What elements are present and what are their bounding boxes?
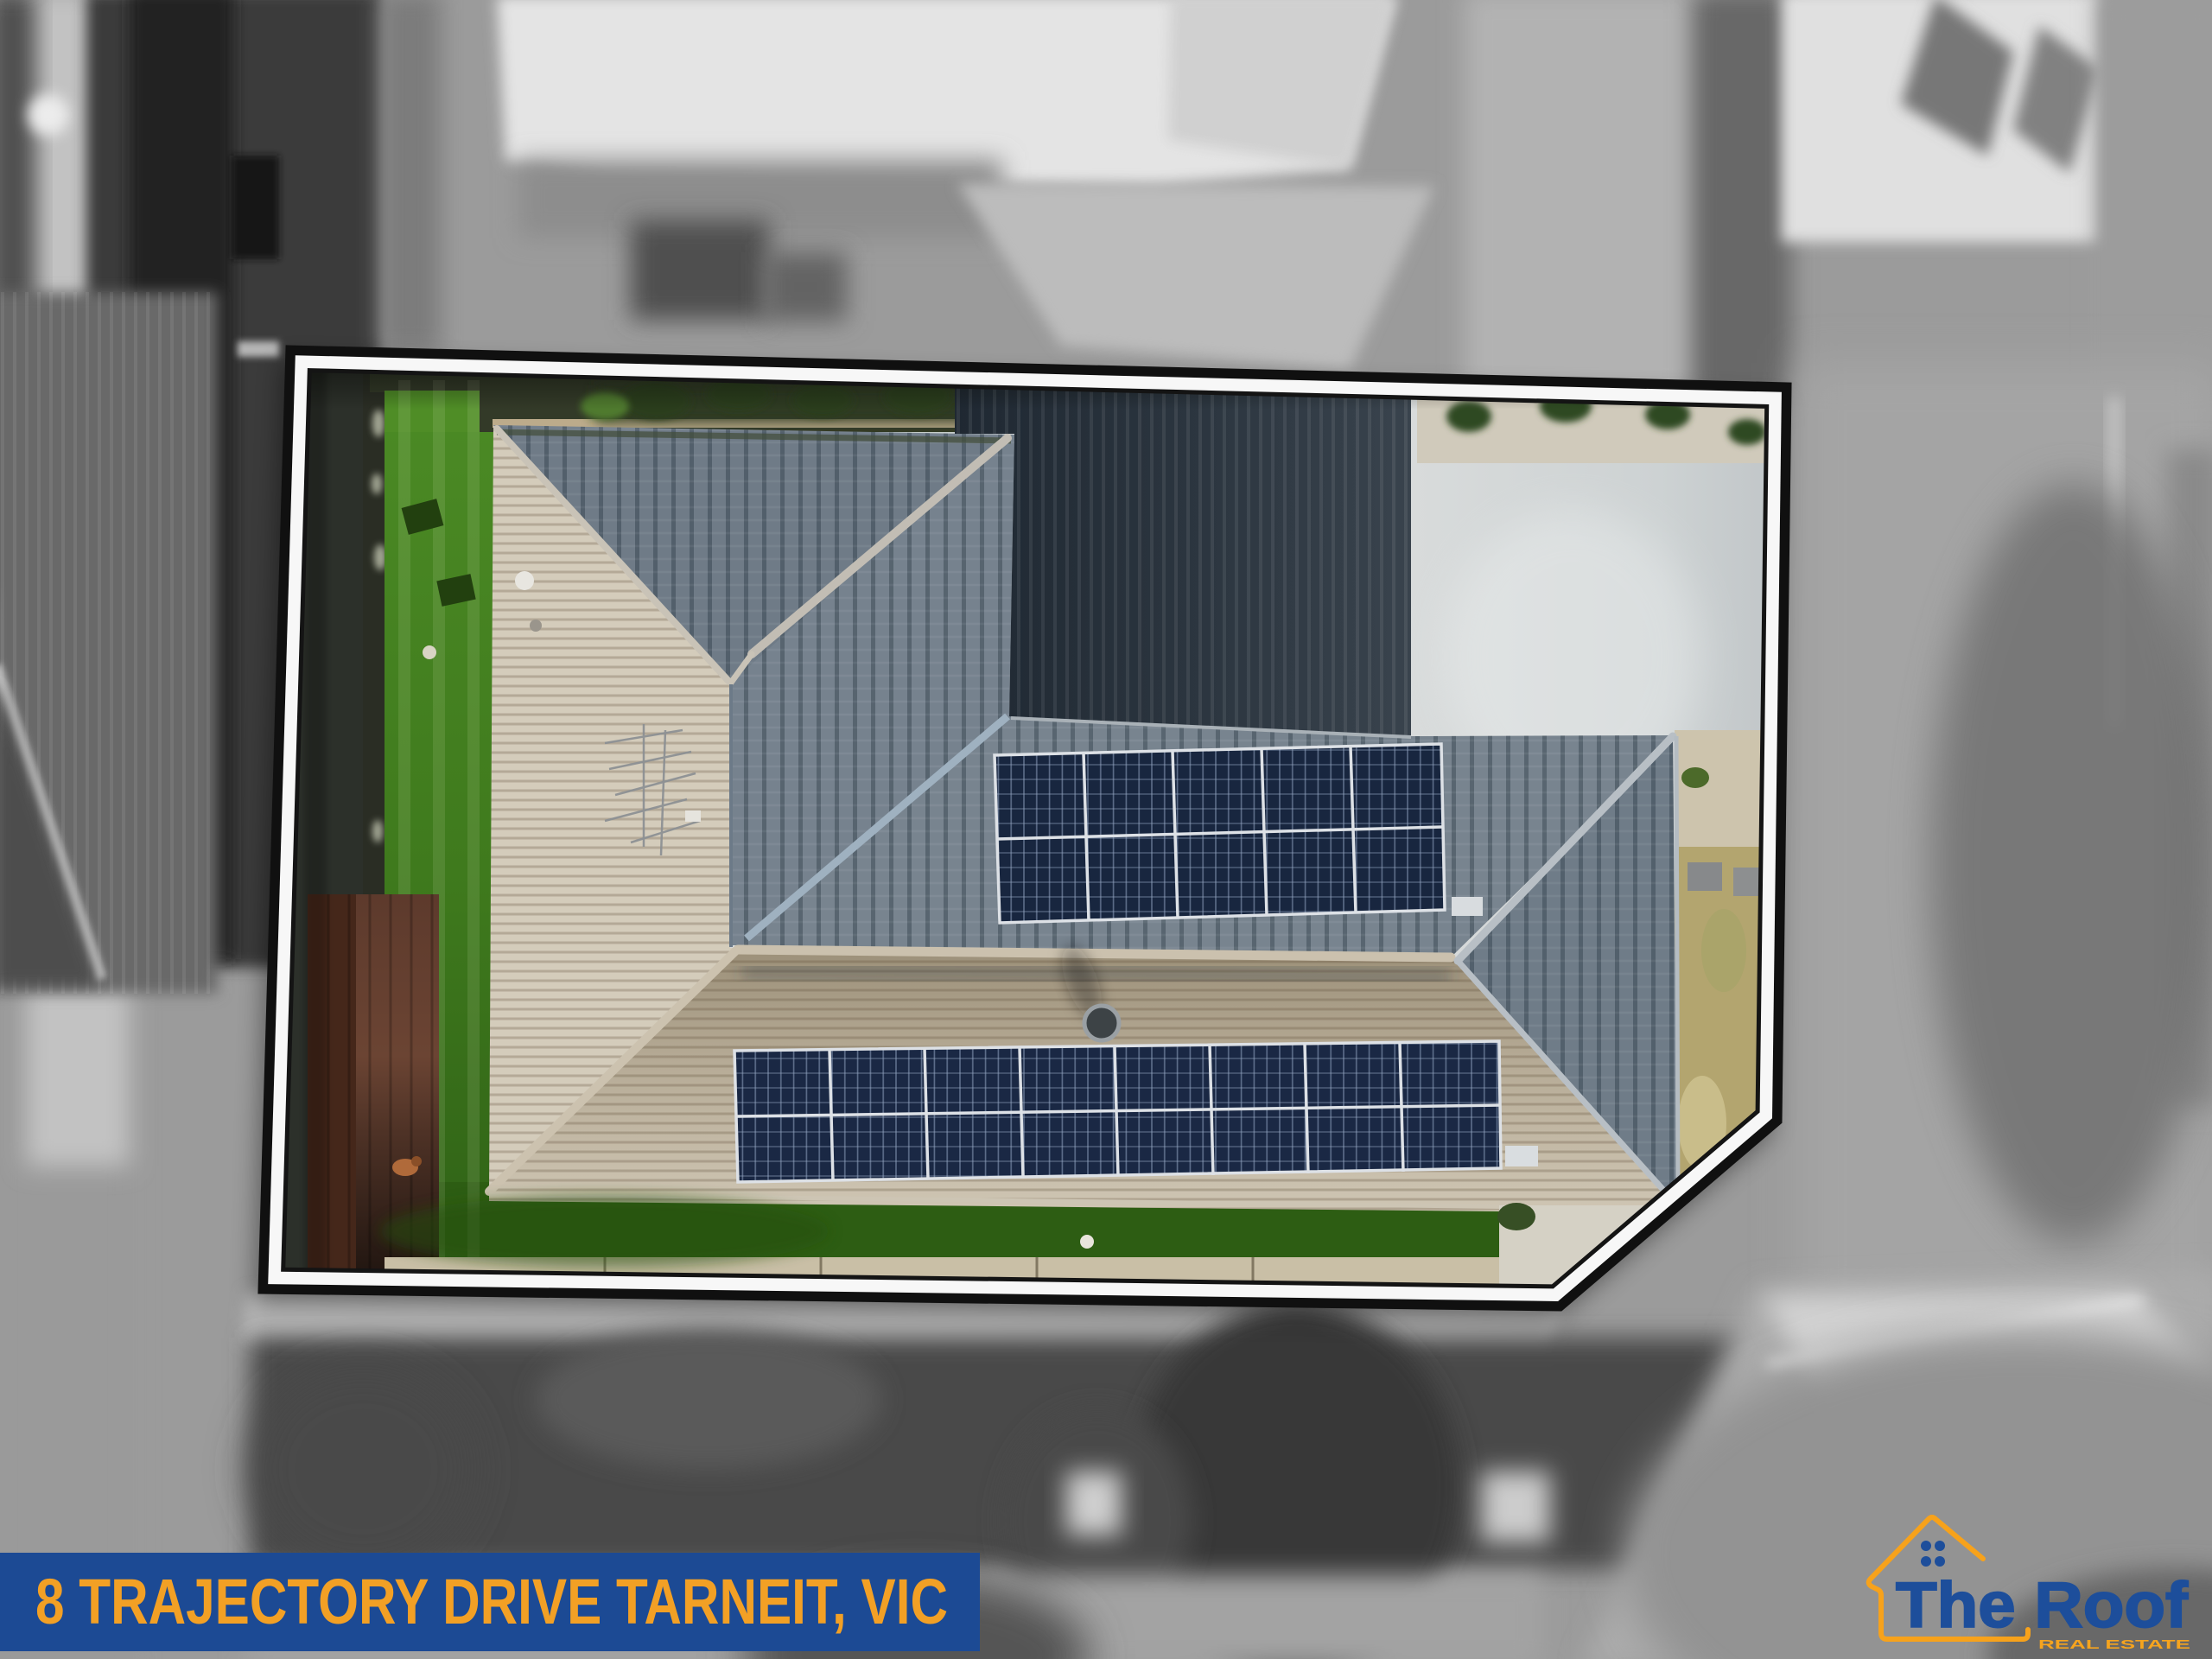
svg-text:8 TRAJECTORY DRIVE TARNEIT, VI: 8 TRAJECTORY DRIVE TARNEIT, VIC bbox=[35, 1566, 948, 1637]
svg-text:The Roof: The Roof bbox=[1896, 1569, 2188, 1641]
svg-text:REAL ESTATE: REAL ESTATE bbox=[2038, 1637, 2190, 1652]
